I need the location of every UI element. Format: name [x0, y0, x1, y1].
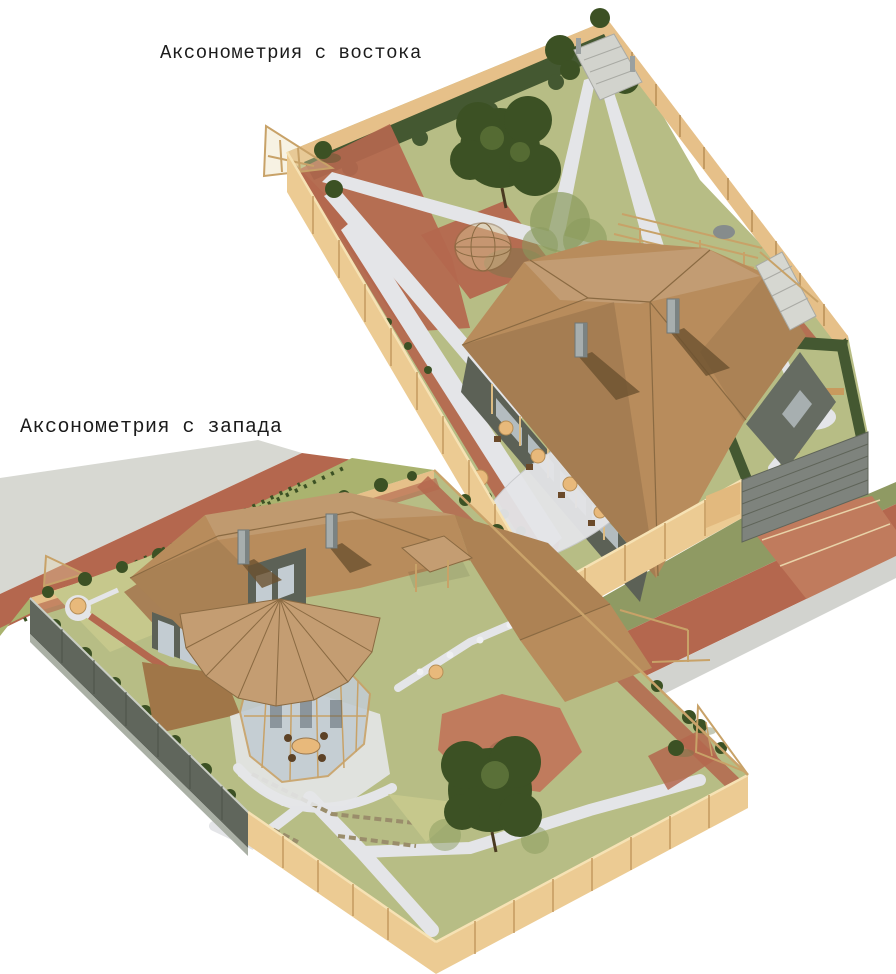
west-small-table	[429, 665, 443, 679]
conservatory-table	[292, 738, 320, 754]
west-view-label: Аксонометрия с запада	[20, 416, 283, 439]
topiary-ball	[668, 740, 684, 756]
gate-post	[630, 56, 635, 72]
west-corner-table	[70, 598, 86, 614]
gate-post	[576, 38, 581, 54]
east-bbq	[713, 225, 735, 239]
east-view-label: Аксонометрия с востока	[160, 42, 422, 64]
drawing-canvas: Аксонометрия с востока Аксонометрия с за…	[0, 0, 896, 974]
site-renderings	[0, 0, 896, 974]
topiary-ball	[693, 719, 707, 733]
